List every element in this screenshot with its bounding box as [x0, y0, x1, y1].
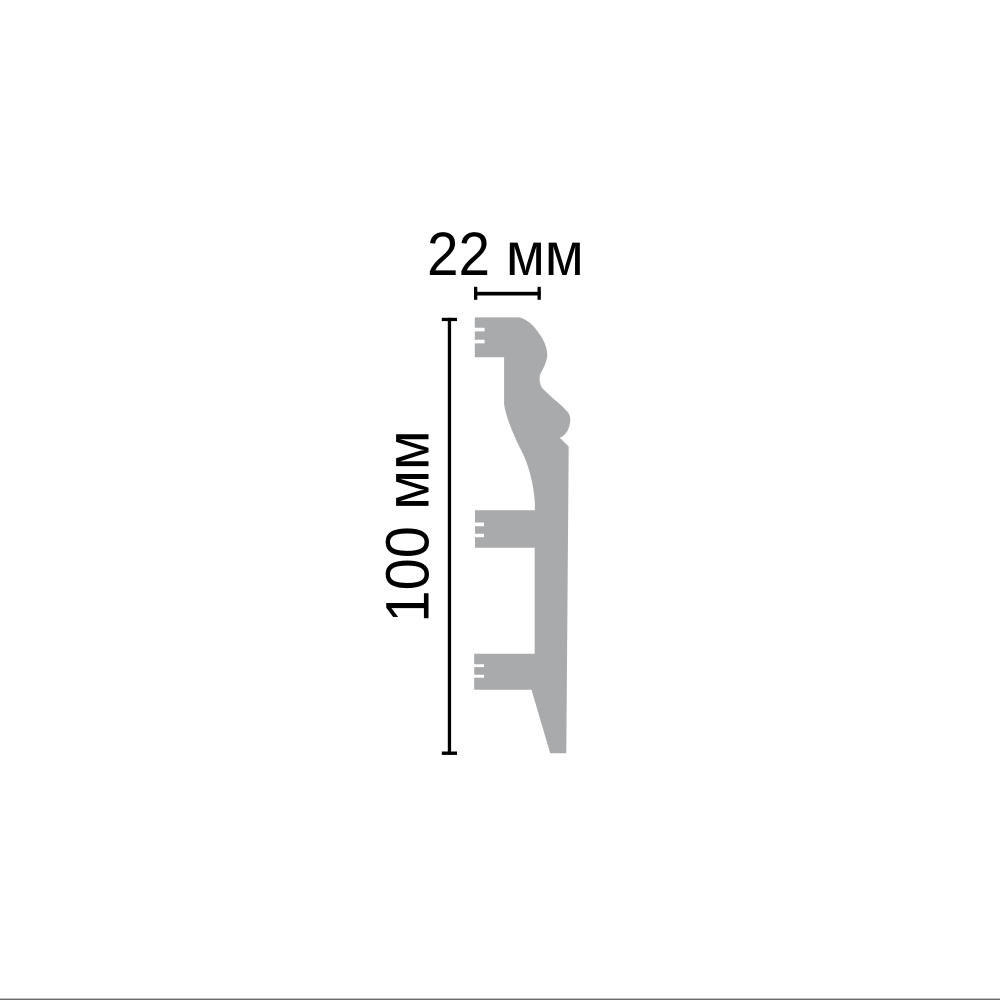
- svg-text:22 мм: 22 мм: [427, 220, 584, 288]
- svg-text:100 мм: 100 мм: [373, 430, 441, 622]
